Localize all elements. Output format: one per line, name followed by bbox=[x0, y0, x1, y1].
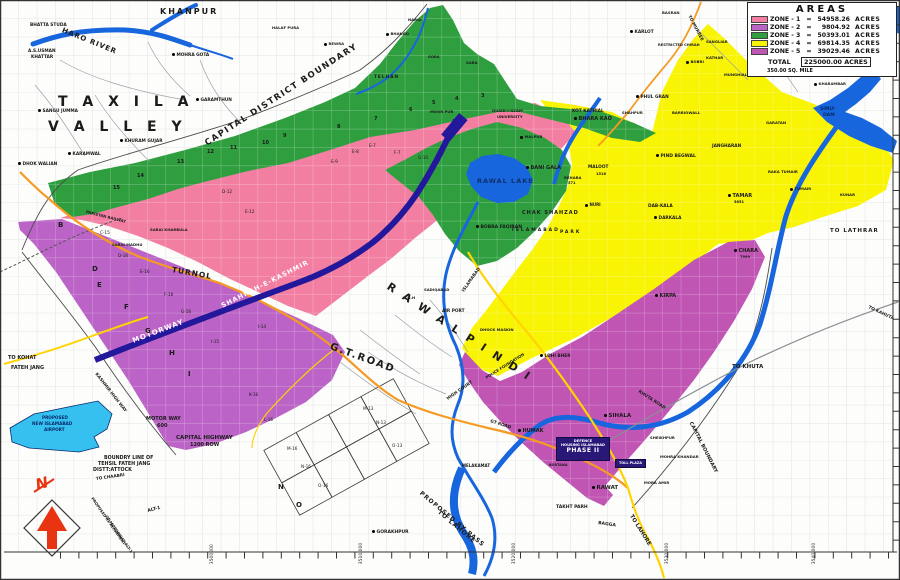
legend-swatch bbox=[751, 32, 768, 39]
legend-zone-value: 69814.35 bbox=[814, 40, 850, 47]
legend-zone-label: ZONE - 4 bbox=[770, 40, 804, 47]
legend-swatch bbox=[751, 24, 768, 31]
legend-zone-unit: ACRES bbox=[852, 16, 893, 23]
legend-rows: ZONE - 1=54958.26ACRESZONE - 2=9804.92AC… bbox=[751, 16, 893, 55]
areas-legend: AREAS ZONE - 1=54958.26ACRESZONE - 2=980… bbox=[747, 2, 897, 77]
legend-zone-label: ZONE - 5 bbox=[770, 48, 804, 55]
legend-zone-value: 50393.01 bbox=[814, 32, 850, 39]
legend-zone-row: ZONE - 5=39029.46ACRES bbox=[751, 48, 893, 55]
dha-phase2-box: DEFENCE HOUSING ISLAMABAD PHASE II bbox=[556, 437, 610, 461]
legend-equals: = bbox=[806, 24, 812, 31]
legend-zone-unit: ACRES bbox=[852, 40, 893, 47]
legend-equals: = bbox=[806, 40, 812, 47]
legend-equals: = bbox=[806, 16, 812, 23]
legend-zone-row: ZONE - 3=50393.01ACRES bbox=[751, 32, 893, 39]
legend-zone-row: ZONE - 2=9804.92ACRES bbox=[751, 24, 893, 31]
legend-zone-label: ZONE - 1 bbox=[770, 16, 804, 23]
legend-zone-unit: ACRES bbox=[852, 32, 893, 39]
zoning-map: KHANPURHARO RIVERBHATTA STUDAA.S.USMANKH… bbox=[0, 0, 900, 580]
legend-swatch bbox=[751, 16, 768, 23]
legend-zone-value: 54958.26 bbox=[814, 16, 850, 23]
legend-equals: = bbox=[806, 48, 812, 55]
legend-total-row: TOTAL 225000.00 ACRES bbox=[751, 57, 893, 67]
legend-zone-row: ZONE - 4=69814.35ACRES bbox=[751, 40, 893, 47]
legend-zone-label: ZONE - 2 bbox=[770, 24, 804, 31]
legend-zone-unit: ACRES bbox=[852, 24, 893, 31]
legend-total-value: 225000.00 ACRES bbox=[801, 57, 871, 67]
legend-total-label: TOTAL bbox=[768, 58, 798, 66]
legend-zone-value: 39029.46 bbox=[814, 48, 850, 55]
legend-title: AREAS bbox=[751, 4, 893, 15]
legend-zone-row: ZONE - 1=54958.26ACRES bbox=[751, 16, 893, 23]
legend-note: 350.00 SQ. MILE bbox=[767, 68, 893, 74]
toll-plaza-box: TOLL PLAZA bbox=[615, 459, 646, 468]
legend-swatch bbox=[751, 48, 768, 55]
map-canvas bbox=[0, 0, 900, 580]
legend-zone-unit: ACRES bbox=[852, 48, 893, 55]
legend-swatch bbox=[751, 40, 768, 47]
dha-line3: PHASE II bbox=[557, 447, 609, 454]
legend-equals: = bbox=[806, 32, 812, 39]
legend-zone-value: 9804.92 bbox=[814, 24, 850, 31]
legend-zone-label: ZONE - 3 bbox=[770, 32, 804, 39]
